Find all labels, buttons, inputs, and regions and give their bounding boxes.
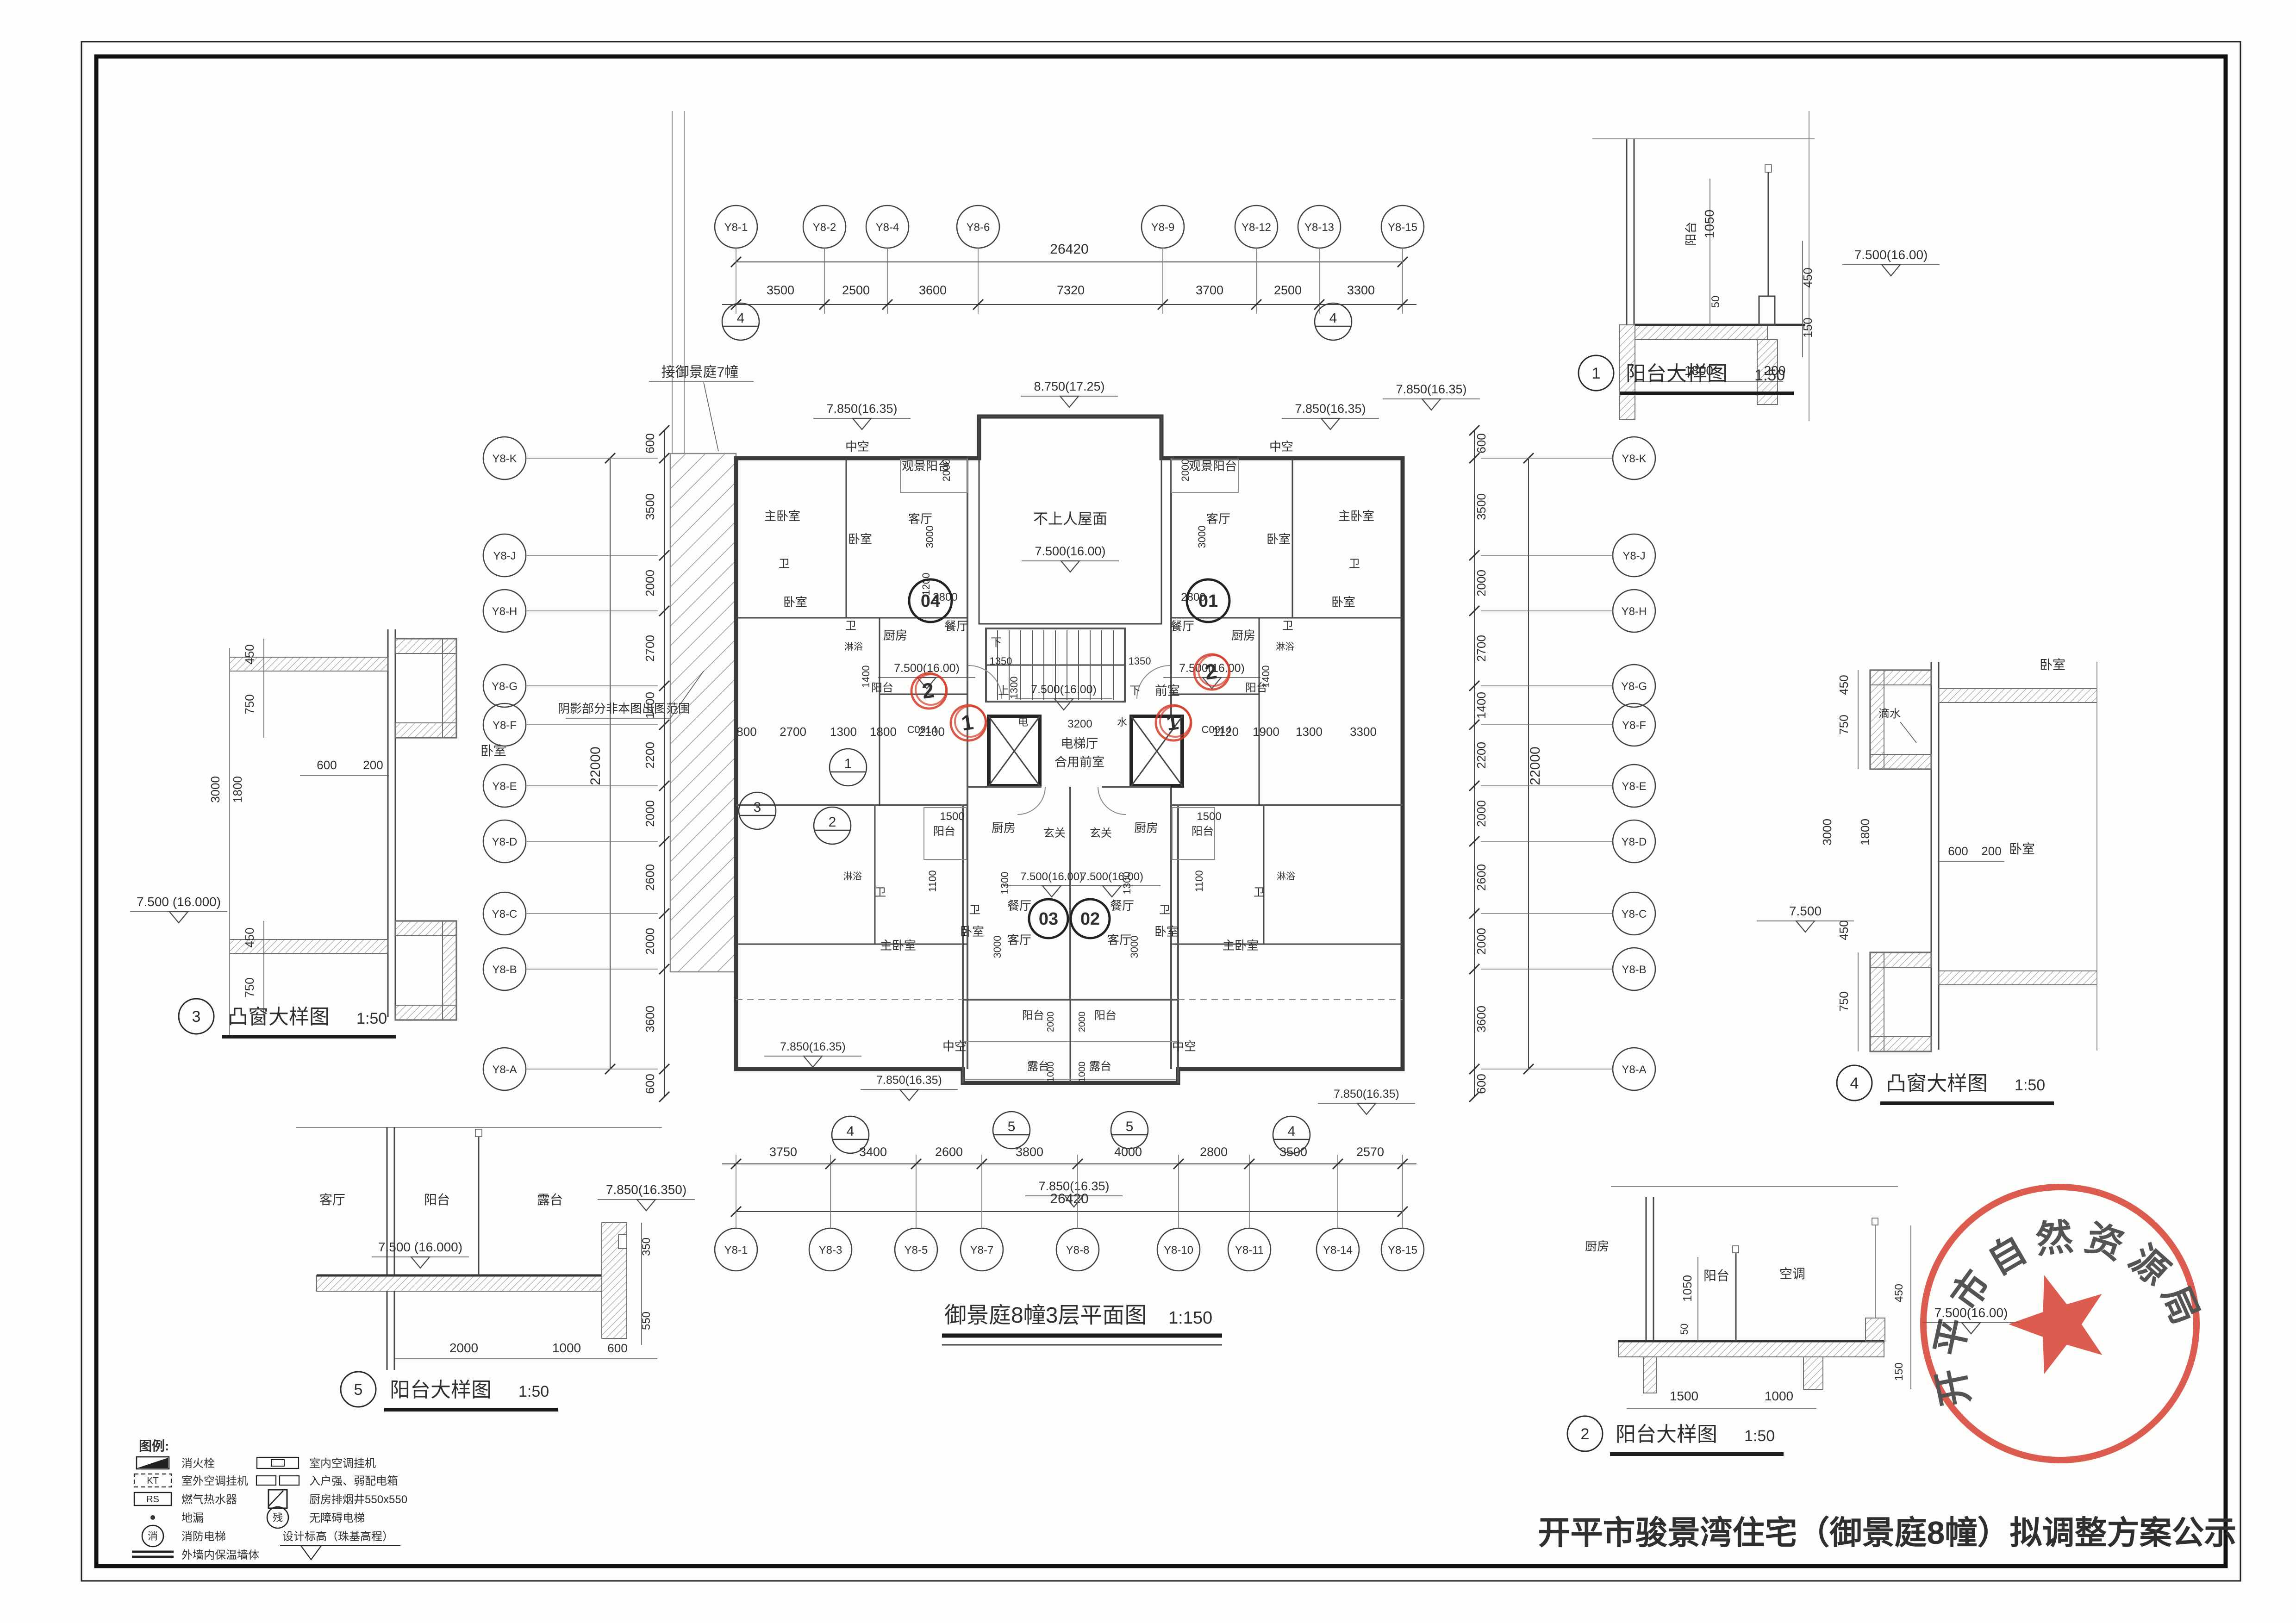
dim-label: 600 (1474, 1074, 1488, 1094)
dim-label: 2570 (1356, 1145, 1384, 1159)
detail-label: 7.500 (1789, 904, 1822, 918)
plan-label: 合用前室 (1054, 755, 1104, 769)
slab-hatch (1939, 689, 2097, 703)
plan-label: 主卧室 (1338, 509, 1374, 523)
detail-label: 750 (1837, 715, 1851, 734)
legend-item-label: 室外空调挂机 (181, 1475, 248, 1487)
elevation-triangle (1882, 265, 1900, 276)
detail-title-scale: 1:50 (2015, 1076, 2045, 1094)
legend-item-label: 地漏 (181, 1512, 204, 1524)
plan-label: 1300 (1008, 677, 1020, 699)
grid-bubble-label: Y8-E (1622, 780, 1646, 793)
dim-total: 22000 (1528, 746, 1543, 785)
railing-cap (1765, 165, 1772, 172)
plan-label: 餐厅 (1110, 899, 1134, 913)
outdoor-ac-tag: KT (147, 1476, 159, 1486)
door-arc (1017, 787, 1045, 815)
detail-label: 450 (1893, 1284, 1905, 1302)
detail-label: 7.850(16.350) (606, 1182, 686, 1197)
dim-label: 2000 (1474, 928, 1488, 955)
elevation-triangle (804, 1056, 822, 1067)
plan-label: 7.850(16.35) (876, 1074, 942, 1087)
grid-bubble-label: Y8-11 (1235, 1244, 1264, 1256)
detail-3-baywindow (230, 629, 456, 1037)
detail-4-baywindow (1858, 662, 2097, 1051)
elevation-triangle (1054, 699, 1073, 710)
plan-label: 1300 (1121, 872, 1133, 895)
plan-label: 主卧室 (880, 939, 916, 952)
plan-label: 玄关 (1043, 827, 1066, 839)
detail-label: 50 (1710, 296, 1722, 308)
plan-label: 电 (1018, 716, 1028, 728)
grid-bubble-label: Y8-2 (813, 221, 836, 234)
legend-title: 图例: (139, 1439, 169, 1453)
grid-bubble-label: Y8-1 (724, 221, 748, 234)
level-mark-icon (301, 1546, 321, 1560)
plan-label: 卧室 (1267, 532, 1291, 546)
plan-label: 电梯厅 (1061, 737, 1098, 751)
detail-label: 7.500 (16.000) (378, 1240, 462, 1254)
detail-2-balcony (1611, 1187, 1911, 1409)
parapet (1759, 296, 1775, 325)
plan-label: 1900 (1253, 725, 1279, 739)
plan-label: 2000 (1077, 1012, 1087, 1032)
plan-label: 卫 (779, 558, 790, 570)
plan-label: 1300 (830, 725, 857, 739)
plan-label: 水 (1117, 716, 1127, 728)
grid-bubble-label: Y8-5 (905, 1244, 928, 1256)
elevation-triangle (1061, 561, 1079, 572)
plan-label: 阳台 (871, 682, 893, 694)
dim-label: 3500 (767, 283, 794, 297)
inner-border (96, 56, 2226, 1566)
legend: 图例: 消火栓室内空调挂机室外空调挂机入户强、弱配电箱燃气热水器厨房排烟井550… (132, 1439, 407, 1561)
plan-label: 3300 (1350, 725, 1377, 739)
dim-label: 2200 (643, 742, 657, 769)
floor-drain-icon (150, 1515, 155, 1520)
detail-label: 1000 (1765, 1389, 1793, 1403)
elevation-triangle (169, 912, 188, 923)
grid-bubble-label: Y8-G (1621, 680, 1647, 693)
sheet-frame (81, 42, 2240, 1581)
detail-title-scale: 1:50 (1744, 1427, 1775, 1445)
plan-label: 中空 (1269, 440, 1293, 454)
detail-label: 450 (1837, 920, 1851, 940)
plan-label: 下 (991, 636, 1002, 649)
detail-label: 1800 (231, 776, 244, 803)
door-arc (1098, 787, 1126, 815)
detail-label: 1500 (1670, 1389, 1698, 1403)
detail-label: 卧室 (2040, 658, 2065, 672)
detail-label: 空调 (1779, 1267, 1805, 1281)
dim-label: 2800 (1200, 1145, 1228, 1159)
detail-title-scale: 1:50 (1754, 367, 1785, 384)
legend-item-label: 入户强、弱配电箱 (309, 1475, 398, 1487)
meter-box-icon (280, 1476, 299, 1485)
slab-hatch (1618, 1341, 1884, 1357)
grid-bubble-label: Y8-J (1622, 550, 1645, 562)
railing-cap (475, 1129, 482, 1137)
detail-label: 阳台 (1703, 1269, 1729, 1283)
legend-item-label: 室内空调挂机 (309, 1457, 376, 1470)
grid-bubble-label: Y8-E (492, 780, 517, 793)
detail-label: 750 (243, 977, 256, 997)
plan-label: 7.500(16.00) (1031, 683, 1097, 696)
dim-label: 2700 (1474, 635, 1488, 662)
elevation-triangle (1357, 1103, 1376, 1114)
detail-title-number: 3 (192, 1008, 201, 1026)
plan-label: 主卧室 (764, 509, 800, 523)
detail-label: 2000 (449, 1341, 478, 1355)
plan-label: 上 (998, 684, 1009, 697)
grid-bubble-label: Y8-6 (967, 221, 990, 234)
grid-bubble-label: Y8-9 (1151, 221, 1175, 234)
dim-label: 2200 (1474, 742, 1488, 769)
gas-heater-tag: RS (146, 1494, 159, 1505)
drop-beam (1803, 1357, 1823, 1389)
grid-bubble-label: Y8-B (1622, 964, 1646, 976)
detail-label: 450 (243, 927, 256, 947)
dim-label: 3700 (1196, 283, 1223, 297)
dim-label: 1400 (643, 692, 657, 719)
dim-label: 600 (643, 1074, 657, 1094)
plan-label: 7.500(16.00) (1080, 871, 1143, 883)
detail-label: 150 (1893, 1362, 1905, 1381)
grid-bubble-label: Y8-D (1622, 836, 1647, 848)
plan-label: 7.850(16.35) (1396, 382, 1466, 396)
dim-label: 2700 (643, 635, 657, 662)
unit-number: 03 (1039, 909, 1058, 929)
dim-label: 7320 (1057, 283, 1085, 297)
unit-number: 01 (1198, 591, 1218, 611)
detail-label: 1050 (1702, 210, 1716, 238)
plan-label: 1000 (1077, 1062, 1087, 1082)
plan-label: 厨房 (883, 628, 907, 642)
grid-bubble-label: Y8-D (492, 836, 518, 848)
plan-label: 中空 (845, 440, 869, 454)
legend-item-label: 厨房排烟井550x550 (309, 1493, 407, 1506)
elevation-triangle (1422, 399, 1441, 410)
dim-label: 3750 (769, 1145, 797, 1159)
plan-label: 1400 (860, 665, 872, 688)
grid-bubble-label: Y8-F (1622, 719, 1646, 732)
slab-hatch (1939, 971, 2097, 985)
detail-label: 卧室 (2009, 842, 2035, 856)
indoor-ac-icon (257, 1457, 299, 1468)
detail-title-scale: 1:50 (356, 1010, 387, 1027)
grid-bubble-label: Y8-12 (1242, 221, 1271, 234)
meter-box-icon (256, 1476, 276, 1485)
plan-label: 1100 (927, 870, 938, 892)
grid-bubble-label: Y8-8 (1066, 1244, 1090, 1256)
exhaust-shaft-icon (268, 1491, 283, 1506)
grid-bubble-label: Y8-G (492, 680, 518, 693)
dim-label: 2600 (643, 864, 657, 891)
plan-label: 1500 (940, 810, 964, 823)
plan-title-block: 御景庭8幢3层平面图 1:150 (942, 1303, 1222, 1345)
plan-label: 卧室 (848, 532, 872, 546)
plan-label: 观景阳台 (1189, 459, 1237, 473)
plan-label: 卫 (845, 620, 856, 632)
detail-label: 50 (1678, 1324, 1690, 1335)
section-marker-number: 4 (737, 311, 745, 326)
detail-label: 450 (1837, 675, 1851, 695)
plan-scale: 1:150 (1168, 1308, 1212, 1328)
plan-label: 3200 (1067, 718, 1092, 730)
grid-bubble-label: Y8-K (492, 453, 517, 465)
detail-label: 450 (243, 644, 256, 664)
detail-label: 1800 (1858, 819, 1872, 846)
detail-label: 200 (1981, 844, 2001, 858)
plan-label: 2700 (780, 725, 806, 739)
elevation-triangle (853, 418, 871, 429)
plan-label: 客厅 (1007, 933, 1031, 947)
plan-label: 淋浴 (844, 641, 863, 652)
detail-title: 凸窗大样图 (1886, 1072, 1988, 1095)
plan-label: 接御景庭7幢 (661, 365, 739, 380)
section-marker-number: 2 (829, 815, 836, 830)
plan-label: 厨房 (992, 821, 1016, 835)
grid-bubble-label: Y8-10 (1164, 1244, 1193, 1256)
dim-label: 2000 (1474, 570, 1488, 597)
plan-label: 卫 (1349, 558, 1360, 570)
detail-label: 450 (1801, 267, 1815, 287)
bay-hatch (443, 921, 456, 1020)
elevation-triangle (637, 1200, 655, 1211)
detail-title-scale: 1:50 (518, 1383, 549, 1400)
detail-label: 3000 (1820, 819, 1834, 846)
legend-item-label: 消火栓 (181, 1457, 215, 1470)
plan-label: 客厅 (908, 512, 932, 526)
plan-label: 厨房 (1231, 628, 1255, 642)
plan-label: 1400 (1260, 665, 1272, 688)
plan-label: 2000 (1179, 459, 1191, 482)
plan-label: 阴影部分非本图出图范围 (558, 702, 690, 715)
dim-label: 3500 (643, 493, 657, 520)
plan-label: 1500 (1197, 810, 1221, 823)
red-revision-number: 1 (960, 710, 975, 735)
detail-5-balcony (296, 1127, 662, 1370)
slab-hatch (1635, 325, 1767, 340)
grid-bubble-label: Y8-15 (1388, 1244, 1417, 1256)
plan-label: 玄关 (1090, 827, 1112, 839)
plan-label: 淋浴 (1277, 871, 1295, 882)
plan-label: 阳台 (1192, 825, 1214, 838)
legend-item-label: 燃气热水器 (181, 1493, 237, 1506)
stamp-star-icon (1997, 1260, 2120, 1380)
plan-label: 餐厅 (944, 619, 968, 633)
grid-bubble-label: Y8-3 (819, 1244, 842, 1256)
note-leader (704, 382, 718, 451)
dim-label: 2600 (1474, 864, 1488, 891)
grid-bubble-label: Y8-B (492, 964, 517, 976)
dim-label: 3500 (1474, 493, 1488, 520)
grid-bubble-label: Y8-15 (1388, 221, 1417, 234)
elevation-triangle (411, 1257, 430, 1268)
legend-item-label: 设计标高（珠基高程） (282, 1530, 393, 1543)
plan-label: 不上人屋面 (1033, 510, 1107, 527)
plan-title: 御景庭8幢3层平面图 (944, 1303, 1147, 1328)
plan-label: 3000 (1129, 936, 1140, 958)
detail-label: 阳台 (424, 1193, 450, 1207)
elevation-triangle (900, 1089, 918, 1101)
railing-cap (1872, 1218, 1878, 1225)
plan-label: 卫 (875, 886, 886, 899)
elevation-triangle (1796, 921, 1815, 932)
plan-label: 1120 (1213, 725, 1239, 739)
section-marker-number: 5 (1126, 1119, 1134, 1134)
dim-total: 26420 (1050, 242, 1088, 257)
plan-label: 厨房 (1134, 821, 1158, 835)
plan-label: 淋浴 (1276, 641, 1294, 652)
plan-label: 7.850(16.35) (1334, 1088, 1399, 1101)
dim-label: 3600 (1474, 1006, 1488, 1032)
dim-label: 2600 (935, 1145, 963, 1159)
publicity-title: 开平市骏景湾住宅（御景庭8幢）拟调整方案公示 (1538, 1515, 2237, 1551)
plan-label: 7.850(16.35) (826, 402, 897, 416)
exhaust-shaft-icon (268, 1490, 287, 1508)
detail-label: 200 (363, 758, 383, 772)
plan-label: 卫 (969, 904, 980, 916)
plan-label: 1350 (990, 655, 1012, 667)
section-marker-number: 3 (754, 800, 761, 815)
plan-label: 1000 (1046, 1062, 1056, 1082)
plan-label: 阳台 (1094, 1009, 1117, 1022)
detail-label: 750 (243, 694, 256, 714)
plan-label: 3000 (924, 526, 936, 548)
legend-item-label: 消防电梯 (181, 1530, 226, 1543)
plan-label: 阳台 (1022, 1009, 1044, 1022)
plan-label: 7.850(16.35) (780, 1040, 846, 1053)
detail-label: 3000 (208, 776, 222, 803)
grid-bubble-label: Y8-K (1622, 453, 1646, 465)
dim-label: 2000 (643, 570, 657, 597)
detail-label: 阳台 (1684, 222, 1698, 246)
dim-label: 1400 (1474, 692, 1488, 719)
wall-hatch (1643, 1357, 1656, 1393)
detail-title-number: 4 (1850, 1075, 1859, 1092)
detail-label: 550 (640, 1312, 653, 1330)
unit-number: 02 (1080, 909, 1100, 929)
dim-label: 2000 (643, 800, 657, 827)
dim-total: 26420 (1050, 1191, 1088, 1206)
plan-label: 主卧室 (1223, 939, 1259, 952)
grid-bubble-label: Y8-H (492, 605, 518, 618)
plan-label: 1800 (870, 725, 897, 739)
slab-hatch (317, 1275, 602, 1291)
unit-number: 04 (921, 591, 940, 611)
detail-label: 7.500 (16.000) (137, 895, 221, 909)
dim-label: 3400 (859, 1145, 887, 1159)
grid-bubble-label: Y8-4 (876, 221, 899, 234)
grid-bubble-label: Y8-7 (970, 1244, 994, 1256)
section-marker-number: 5 (1008, 1119, 1016, 1134)
fire-elevator-char: 消 (148, 1530, 158, 1542)
plan-label: 卧室 (960, 925, 984, 939)
detail-title: 阳台大样图 (1616, 1423, 1717, 1446)
plan-label: 800 (736, 725, 756, 739)
grid-bubble-label: Y8-C (1622, 908, 1647, 920)
detail-label: 1050 (1680, 1275, 1694, 1302)
parapet (1865, 1318, 1885, 1341)
grid-bubble-label: Y8-C (492, 908, 518, 920)
elevation-triangle (1060, 396, 1079, 407)
plan-label: 卫 (1159, 904, 1170, 916)
detail-title: 阳台大样图 (390, 1379, 492, 1401)
grid-bubble-label: Y8-F (493, 719, 517, 732)
detail-label: 露台 (537, 1193, 563, 1207)
dim-label: 2000 (643, 928, 657, 955)
grid-bubble-label: Y8-H (1622, 605, 1647, 618)
elevation-triangle (1321, 418, 1340, 429)
detail-label: 客厅 (319, 1193, 345, 1207)
grid-bubble-label: Y8-1 (724, 1244, 748, 1256)
plan-label: 2000 (1046, 1012, 1056, 1032)
indoor-ac-icon (271, 1460, 284, 1466)
plan-label: 1300 (1296, 725, 1323, 739)
fire-hydrant-icon (137, 1458, 168, 1468)
accessible-elevator-char: 残 (273, 1512, 283, 1524)
plan-label: 卫 (1282, 620, 1293, 632)
plan-label: 卧室 (1154, 925, 1179, 939)
dim-label: 3600 (643, 1006, 657, 1032)
plan-label: 2000 (941, 459, 952, 482)
plan-label: 前室 (1155, 684, 1180, 698)
grid-bubble-label: Y8-A (1622, 1063, 1646, 1076)
dim-label: 600 (643, 433, 657, 453)
detail-label: 350 (640, 1237, 653, 1256)
plan-label: 中空 (1172, 1039, 1196, 1053)
plan-label: 卧室 (1331, 595, 1355, 609)
drawing-sheet: 御景庭8幢3层平面图 1:150 图例: 消火栓室内空调挂机室外空调挂机入户强、… (0, 0, 2296, 1623)
plan-label: 卫 (1254, 886, 1265, 899)
section-marker-number: 4 (847, 1124, 855, 1139)
legend-item-label: 外墙内保温墙体 (181, 1549, 259, 1561)
detail-label: 滴水 (1878, 708, 1901, 720)
dim-label: 2500 (1274, 283, 1302, 297)
dim-label: 3600 (919, 283, 947, 297)
grid-bubble-label: Y8-13 (1304, 221, 1334, 234)
dim-label: 600 (1474, 433, 1488, 453)
plan-label: 1300 (999, 872, 1011, 895)
drip-leader (1900, 722, 1916, 743)
red-revision-number: 2 (920, 678, 936, 703)
plan-label: 3000 (992, 936, 1003, 958)
parapet-notch (618, 1235, 627, 1249)
outer-border (81, 42, 2240, 1581)
bay-hatch (443, 639, 456, 738)
section-marker-number: 1 (844, 756, 852, 771)
plan-label: 7.500(16.00) (1020, 871, 1083, 883)
plan-label: 1350 (1129, 655, 1151, 667)
plan-label: 中空 (942, 1039, 967, 1053)
plan-label: 8.750(17.25) (1034, 379, 1104, 393)
bay-hatch (1870, 952, 1884, 1051)
official-stamp: 开平市自然资源局 (1881, 1149, 2239, 1498)
dim-total: 22000 (588, 746, 603, 785)
plan-label: 餐厅 (1007, 899, 1031, 913)
detail-label: 7.500(16.00) (1854, 248, 1928, 262)
section-marker-number: 4 (1288, 1124, 1296, 1139)
plan-label: 客厅 (1206, 512, 1230, 526)
detail-label: 750 (1837, 991, 1851, 1011)
detail-title-number: 1 (1592, 365, 1601, 382)
detail-label: 1000 (552, 1341, 581, 1355)
detail-label: 600 (317, 758, 337, 772)
detail-label: 厨房 (1585, 1239, 1609, 1253)
plan-label: 下 (1129, 684, 1141, 697)
railing-cap (1733, 1246, 1739, 1253)
